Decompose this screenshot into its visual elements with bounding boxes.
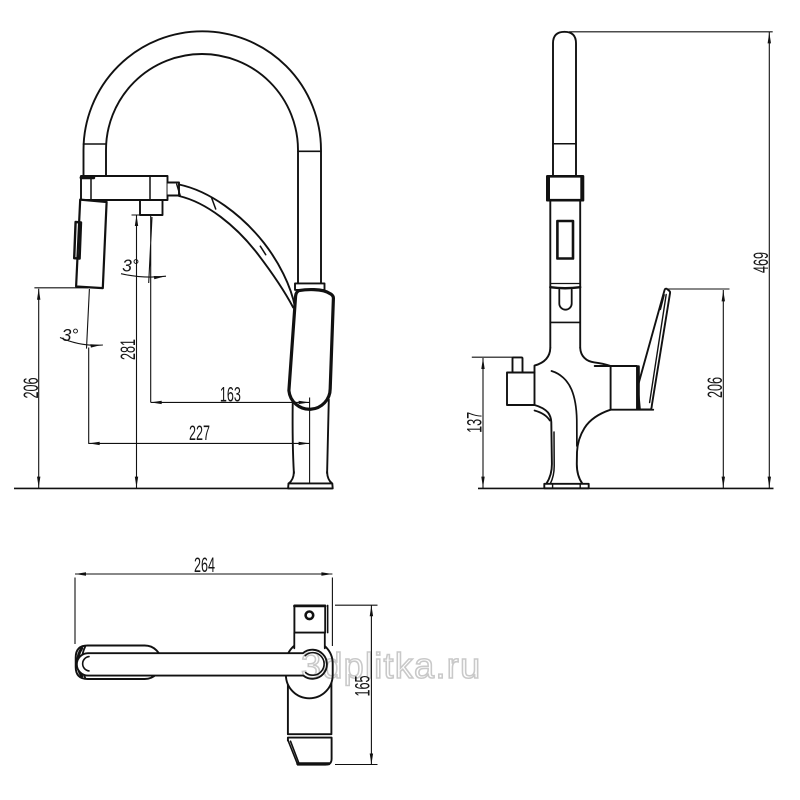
svg-text:227: 227 bbox=[189, 422, 210, 445]
svg-text:469: 469 bbox=[750, 252, 773, 273]
svg-text:163: 163 bbox=[220, 383, 241, 406]
svg-text:137: 137 bbox=[464, 412, 487, 433]
svg-text:281: 281 bbox=[117, 339, 140, 360]
svg-text:206: 206 bbox=[20, 378, 43, 399]
svg-text:264: 264 bbox=[194, 554, 215, 577]
svg-text:3°: 3° bbox=[122, 256, 139, 276]
svg-text:3°: 3° bbox=[62, 325, 79, 345]
svg-text:206: 206 bbox=[704, 377, 727, 398]
